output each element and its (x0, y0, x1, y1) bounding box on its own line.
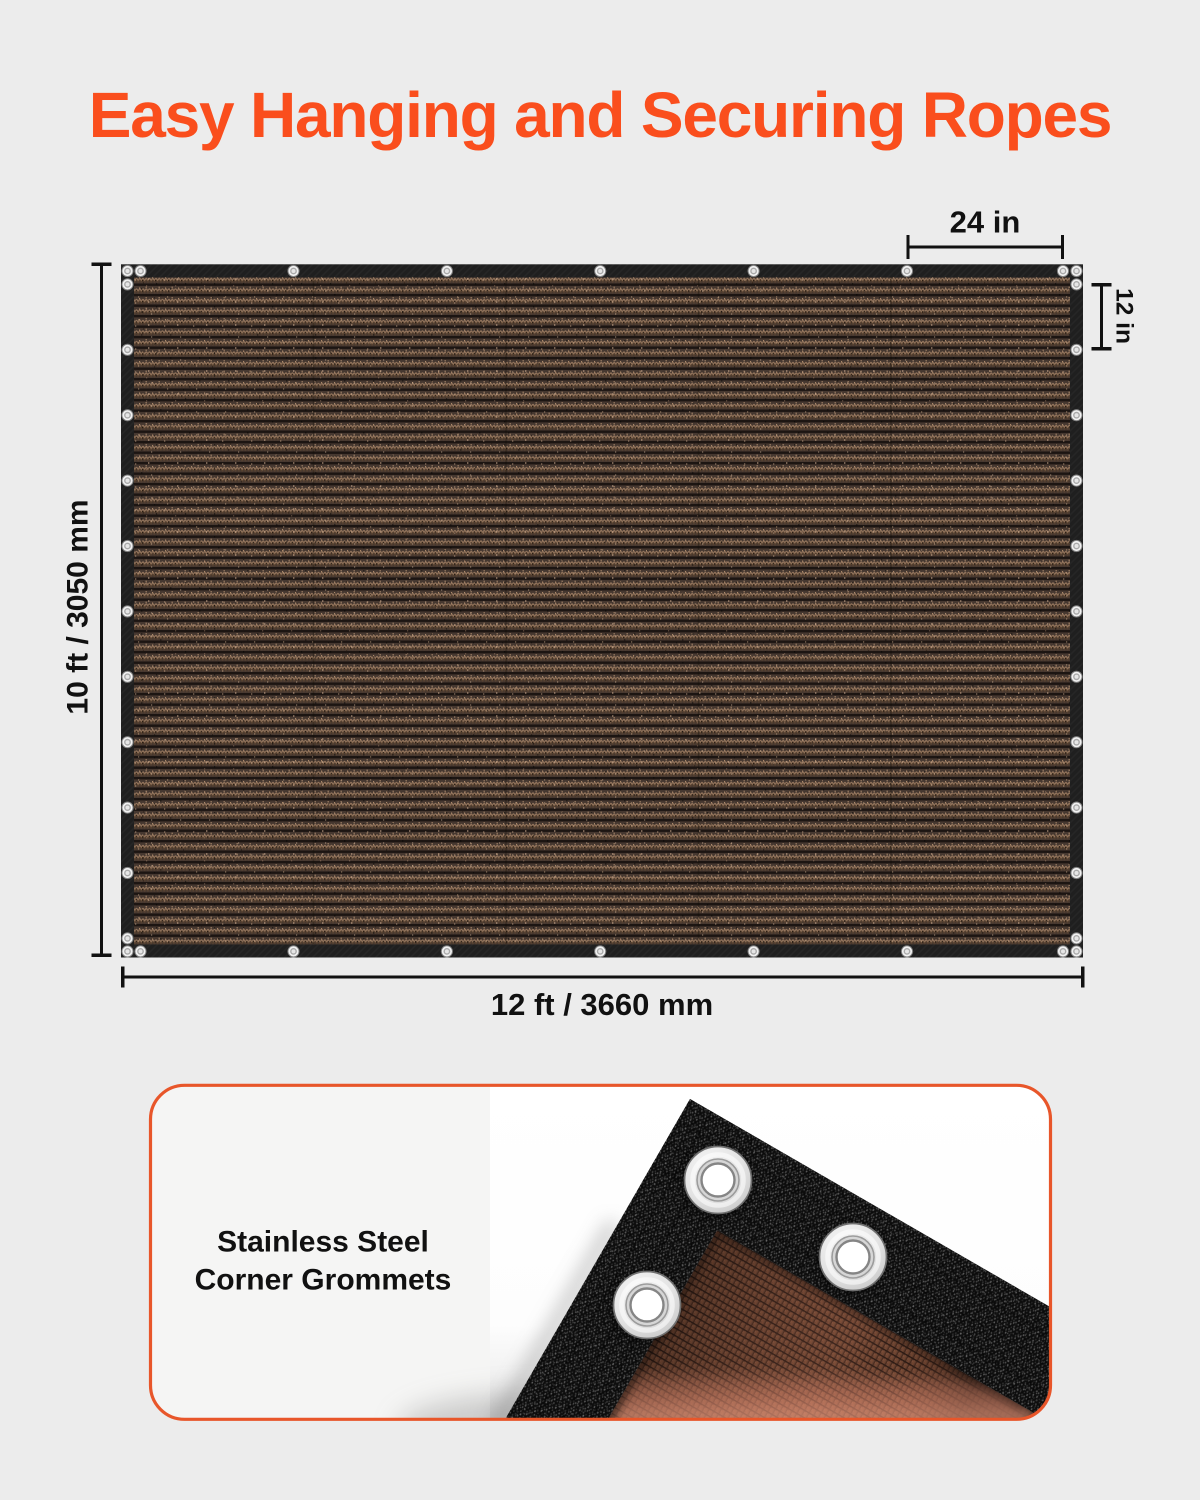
svg-text:12 ft / 3660 mm: 12 ft / 3660 mm (491, 987, 713, 1022)
svg-text:Corner Grommets: Corner Grommets (195, 1264, 452, 1297)
svg-text:Stainless Steel: Stainless Steel (217, 1226, 429, 1259)
svg-text:10 ft / 3050 mm: 10 ft / 3050 mm (62, 499, 95, 714)
svg-text:Easy Hanging and Securing Rope: Easy Hanging and Securing Ropes (89, 79, 1112, 151)
svg-text:12 in: 12 in (1111, 288, 1138, 344)
svg-text:24 in: 24 in (950, 205, 1021, 240)
